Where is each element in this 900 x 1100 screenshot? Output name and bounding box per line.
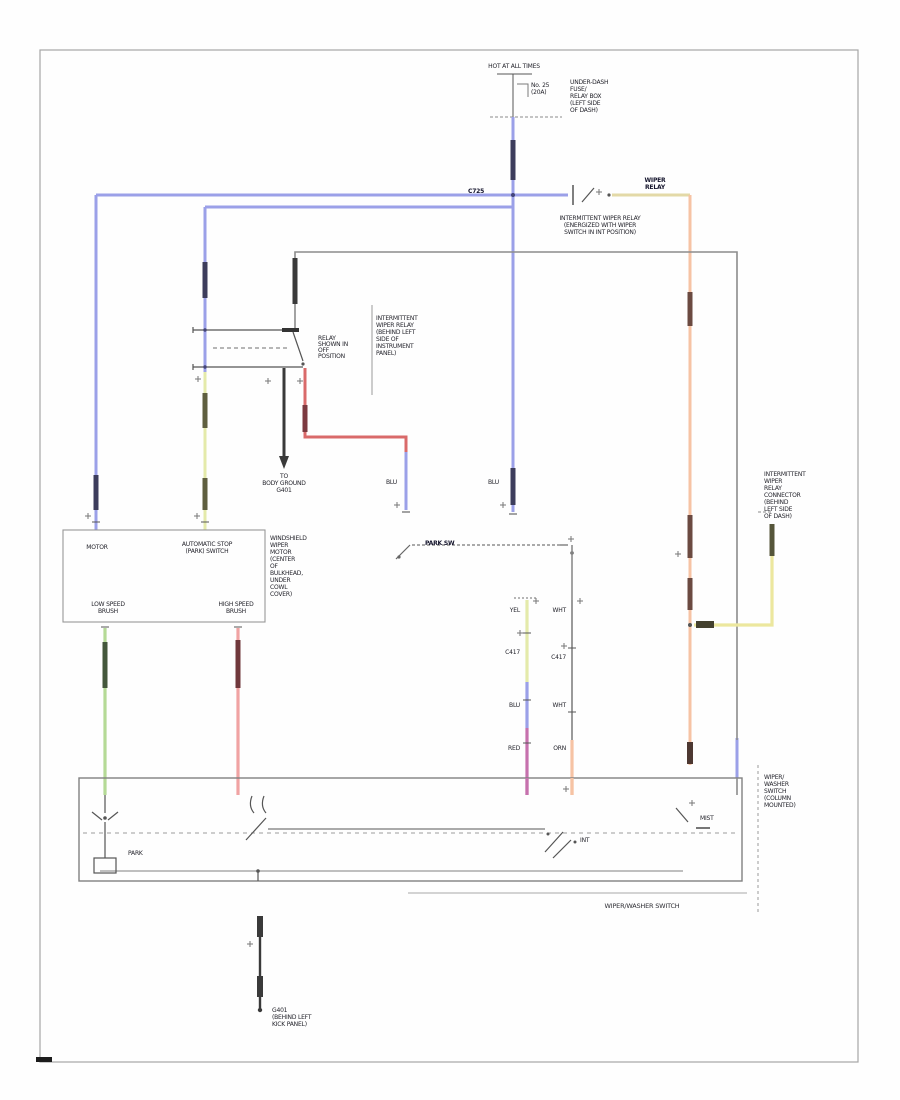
page-border xyxy=(36,50,858,1062)
wire-yellow-right xyxy=(688,512,772,628)
wire-red-relay-output xyxy=(305,368,406,452)
wiring-diagram-svg xyxy=(0,0,900,1100)
fuse-symbol xyxy=(490,74,562,117)
relay-contact-top xyxy=(573,185,611,205)
wire-loop-gray xyxy=(295,252,737,740)
relay-note: POSITION xyxy=(318,354,345,361)
junction-dot xyxy=(511,193,515,197)
column-label: MOUNTED) xyxy=(764,803,796,810)
motor-terminal-label: MOTOR xyxy=(86,545,107,552)
ground-g401-label: KICK PANEL) xyxy=(272,1022,307,1029)
relay-caption: SWITCH IN INT POSITION) xyxy=(564,230,636,237)
wire-code: C417 xyxy=(534,655,566,662)
wiper-washer-switch-box xyxy=(79,778,747,893)
hot-label: HOT AT ALL TIMES xyxy=(488,64,540,71)
wire-code: BLU xyxy=(488,703,520,710)
mist-contact-label: MIST xyxy=(700,816,714,823)
wire-blue-feed xyxy=(96,117,737,778)
wire-code: WHT xyxy=(534,608,566,615)
park-contact-label: PARK xyxy=(128,851,143,858)
int-contact-label: INT xyxy=(580,838,589,845)
wire-code: ORN xyxy=(534,746,566,753)
wire-code: WHT xyxy=(534,703,566,710)
ladder-ticks xyxy=(523,633,576,743)
motor-terminal-label: BRUSH xyxy=(98,609,118,616)
relay-wire-label: RELAY xyxy=(645,185,665,192)
motor-terminal-label: (PARK) SWITCH xyxy=(186,549,229,556)
park-switch-label: PARK SW xyxy=(425,541,454,548)
diagram-canvas: HOT AT ALL TIMES No. 25 (20A) UNDER-DASH… xyxy=(0,0,900,1100)
wire-black-g401 xyxy=(258,916,262,1012)
wire-code: YEL xyxy=(488,608,520,615)
wire-code: C417 xyxy=(488,650,520,657)
wire-code-blu: BLU xyxy=(488,480,499,487)
diagram-caption: WIPER/WASHER SWITCH xyxy=(605,903,680,910)
fusebox-label: OF DASH) xyxy=(570,108,598,115)
park-switch-symbol xyxy=(396,512,574,600)
relay-name: PANEL) xyxy=(376,351,396,358)
motor-terminal-label: BRUSH xyxy=(226,609,246,616)
wire-black-ground-drop xyxy=(279,368,289,469)
wire-red-motor xyxy=(234,627,242,795)
motor-name: COVER) xyxy=(270,592,292,599)
switch-box-internals xyxy=(92,778,737,881)
wire-code-blu: BLU xyxy=(386,480,397,487)
right-connector-label: OF DASH) xyxy=(764,514,792,521)
connector-code: C725 xyxy=(468,189,484,196)
wiring-diagram-page: HOT AT ALL TIMES No. 25 (20A) UNDER-DASH… xyxy=(0,0,900,1100)
wire-code: RED xyxy=(488,746,520,753)
relay-ground-label: G401 xyxy=(276,488,291,495)
fuse-rating: (20A) xyxy=(531,90,546,97)
wire-green-motor xyxy=(101,627,109,795)
